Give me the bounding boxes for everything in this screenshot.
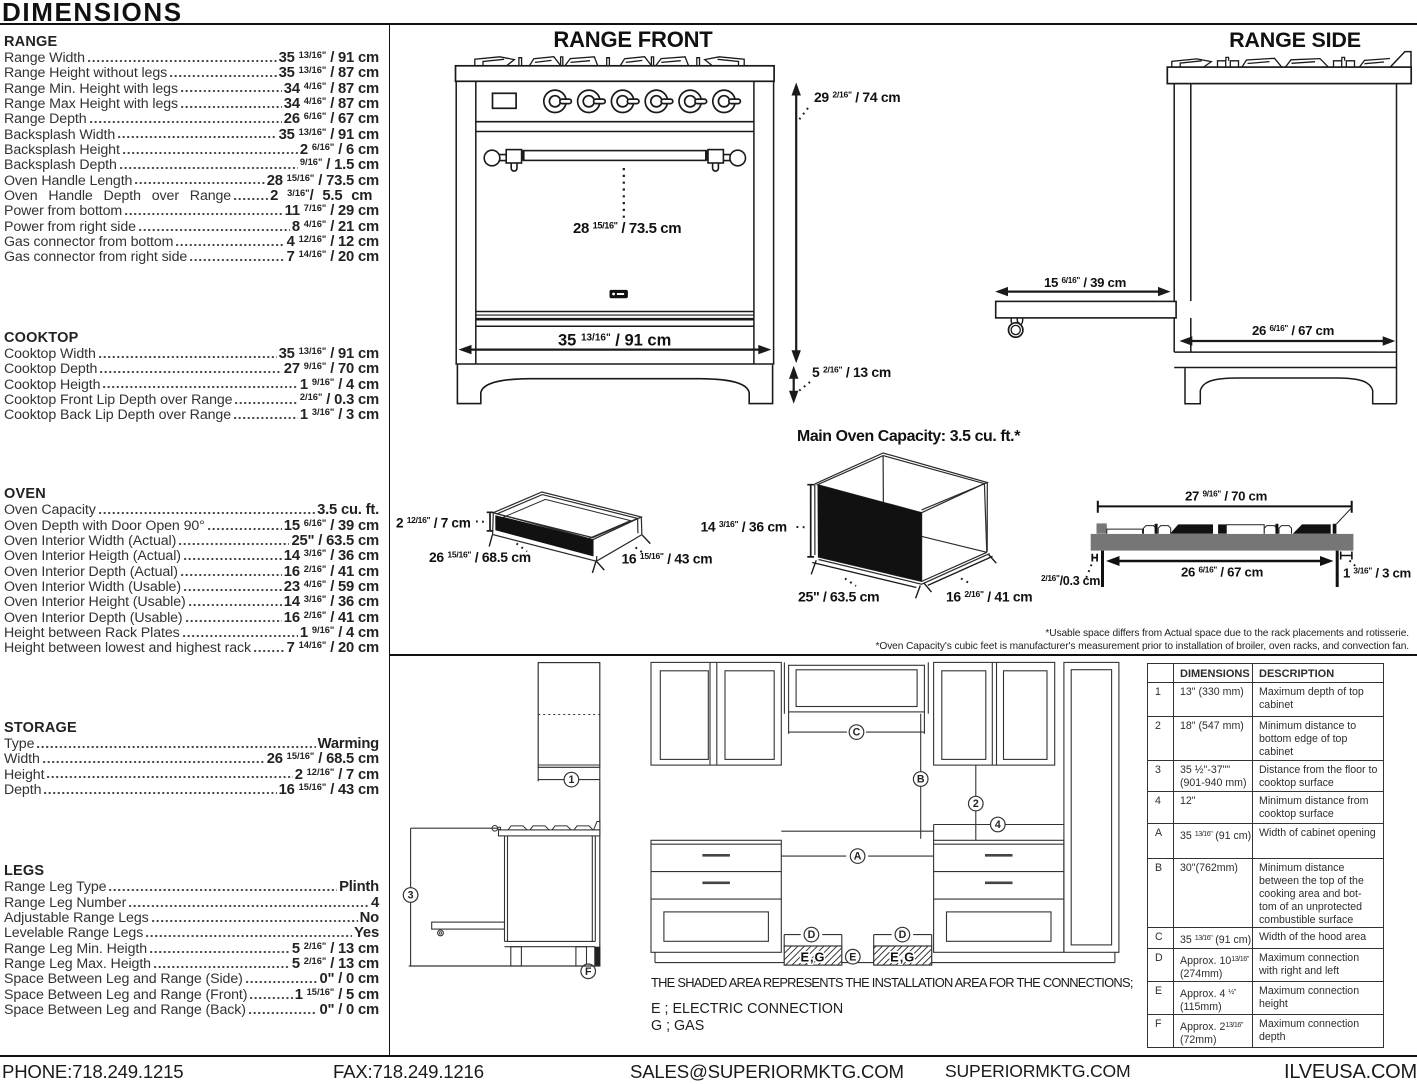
svg-text:16 15/16" / 43 cm: 16 15/16" / 43 cm — [622, 551, 713, 567]
svg-text:D: D — [899, 929, 907, 941]
svg-text:27 9/16" / 70 cm: 27 9/16" / 70 cm — [1185, 488, 1267, 503]
svg-text:29 2/16" / 74 cm: 29 2/16" / 74 cm — [814, 89, 900, 105]
svg-text:E: E — [849, 951, 856, 963]
svg-text:C: C — [853, 727, 861, 739]
svg-text:5 2/16" / 13 cm: 5 2/16" / 13 cm — [812, 364, 891, 380]
svg-text:B: B — [917, 774, 925, 786]
svg-text:26 6/16" / 67 cm: 26 6/16" / 67 cm — [1252, 323, 1334, 338]
svg-text:E,G: E,G — [890, 950, 915, 965]
svg-text:Main Oven Capacity: 3.5 cu. ft: Main Oven Capacity: 3.5 cu. ft.* — [797, 428, 1021, 445]
svg-text:28 15/16" / 73.5 cm: 28 15/16" / 73.5 cm — [573, 220, 681, 237]
svg-text:1 3/16" / 3 cm: 1 3/16" / 3 cm — [1343, 565, 1411, 580]
svg-text:16 2/16" / 41 cm: 16 2/16" / 41 cm — [946, 589, 1032, 605]
svg-text:2: 2 — [973, 798, 979, 810]
svg-text:4: 4 — [995, 819, 1001, 831]
svg-text:E,G: E,G — [800, 950, 825, 965]
svg-text:2/16"/0.3 cm: 2/16"/0.3 cm — [1041, 573, 1100, 588]
svg-text:1: 1 — [568, 774, 574, 786]
svg-text:35 13/16" / 91 cm: 35 13/16" / 91 cm — [558, 332, 671, 350]
svg-text:14 3/16" / 36 cm: 14 3/16" / 36 cm — [701, 519, 787, 535]
svg-text:2 12/16" / 7 cm: 2 12/16" / 7 cm — [396, 515, 471, 530]
svg-text:25" / 63.5 cm: 25" / 63.5 cm — [798, 590, 879, 606]
svg-text:RANGE FRONT: RANGE FRONT — [553, 27, 713, 52]
svg-text:26 6/16" / 67 cm: 26 6/16" / 67 cm — [1181, 564, 1263, 579]
svg-text:3: 3 — [408, 890, 414, 902]
svg-text:A: A — [854, 851, 862, 863]
svg-text:D: D — [808, 929, 816, 941]
svg-text:26 15/16" / 68.5 cm: 26 15/16" / 68.5 cm — [429, 549, 531, 565]
svg-text:RANGE SIDE: RANGE SIDE — [1229, 28, 1361, 52]
svg-text:F: F — [585, 966, 592, 978]
svg-text:15 6/16" / 39 cm: 15 6/16" / 39 cm — [1044, 275, 1126, 290]
